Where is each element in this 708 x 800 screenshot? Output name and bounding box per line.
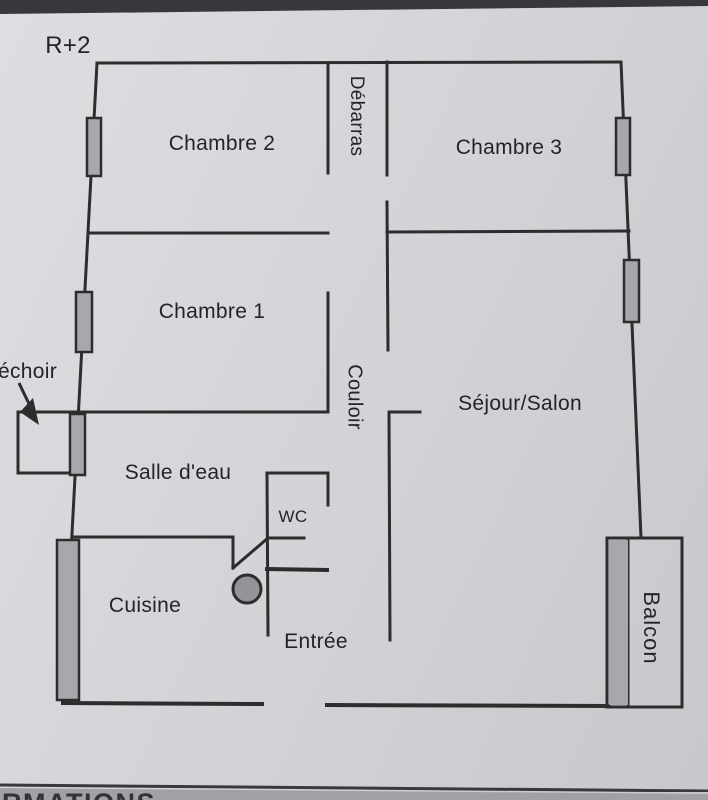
window-left-chambre1 [76,292,92,352]
room-label-cuisine: Cuisine [109,594,181,618]
symbols [19,383,261,603]
wall-outer-top [97,62,621,63]
window-right-chambre3 [616,118,630,175]
room-label-salle-eau: Salle d'eau [125,461,232,485]
room-label-sejour-salon: Séjour/Salon [458,392,582,416]
balcon-glazing-band [609,540,628,705]
room-label-balcon: Balcon [638,591,664,664]
room-label-sechoir-partial: échoir [0,360,57,384]
room-label-wc: WC [279,507,308,527]
wall-chambre3-sejour-divider [387,231,629,232]
cuisine-door-leaf [233,538,268,568]
room-label-couloir: Couloir [343,364,366,429]
wall-sejour-entree-divider [389,412,390,640]
window-left-cuisine [57,540,79,700]
room-label-chambre3: Chambre 3 [456,136,563,160]
window-left-chambre2 [87,118,101,176]
wall-outer-bottom-left [63,703,262,704]
wall-wc-left-entree [267,473,268,635]
footer-partial-text: RMATIONS [2,788,156,800]
room-label-chambre2: Chambre 2 [169,132,276,156]
fixture-circle-icon [233,575,261,603]
wall-couloir-right-upper [387,202,388,350]
room-label-debarras: Débarras [345,76,367,157]
window-right-sejour [624,260,639,322]
floor-level-label: R+2 [45,32,91,60]
room-label-entree: Entrée [284,630,348,654]
scanned-floor-plan-page: R+2 Chambre 2 Débarras Chambre 3 Chambre… [0,0,708,800]
door-sechoir [70,414,85,475]
wall-outer-bottom-right [327,705,609,706]
wall-wc-bottom [267,569,327,570]
room-label-chambre1: Chambre 1 [159,300,266,324]
